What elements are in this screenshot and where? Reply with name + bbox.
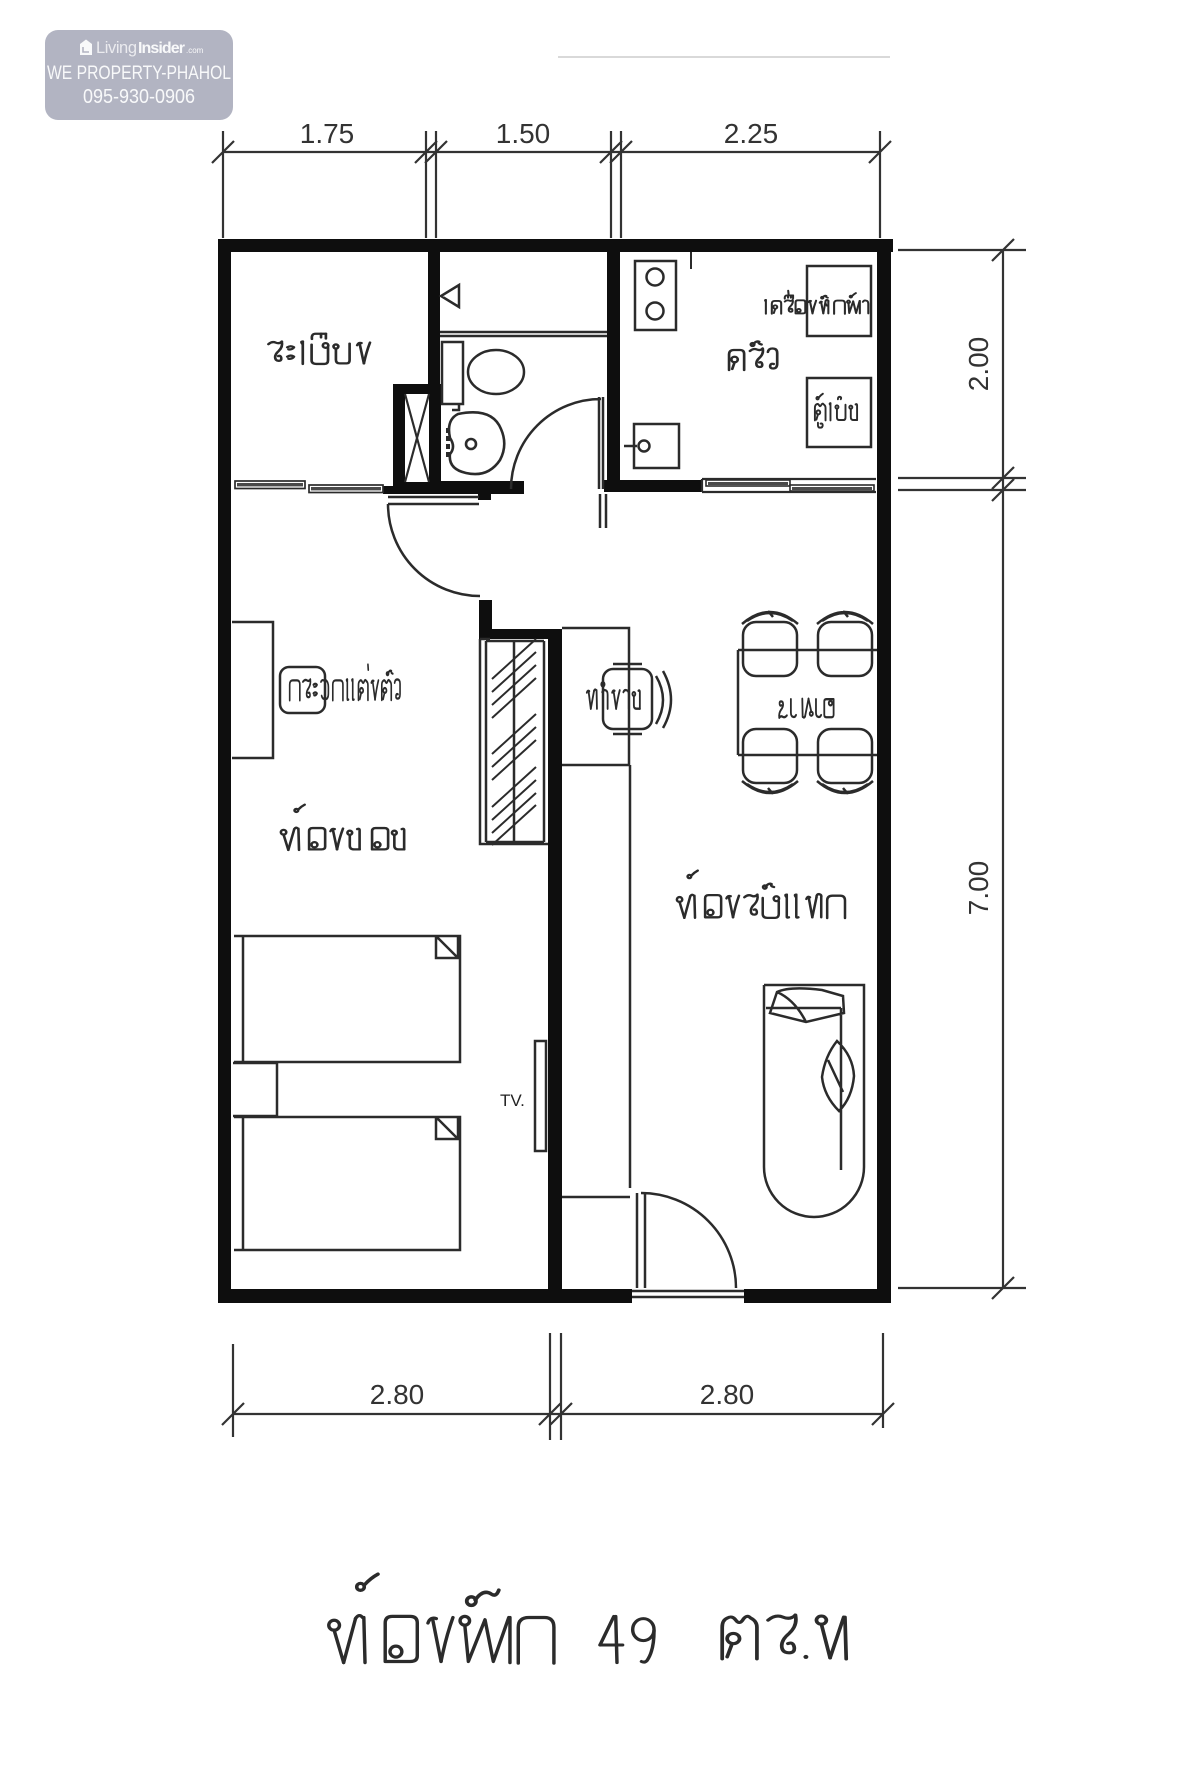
svg-text:WE PROPERTY-PHAHOL: WE PROPERTY-PHAHOL (47, 63, 231, 84)
svg-text:095-930-0906: 095-930-0906 (83, 85, 195, 108)
svg-text:2.25: 2.25 (724, 118, 779, 149)
svg-text:1.75: 1.75 (300, 118, 355, 149)
svg-text:TV.: TV. (500, 1091, 525, 1110)
svg-text:2.80: 2.80 (700, 1379, 755, 1410)
svg-text:.com: .com (186, 46, 204, 55)
svg-text:2.80: 2.80 (370, 1379, 425, 1410)
svg-text:7.00: 7.00 (963, 861, 994, 916)
svg-text:Living: Living (96, 39, 137, 57)
svg-text:Insider: Insider (138, 40, 185, 57)
svg-text:2.00: 2.00 (963, 337, 994, 392)
svg-text:1.50: 1.50 (496, 118, 551, 149)
